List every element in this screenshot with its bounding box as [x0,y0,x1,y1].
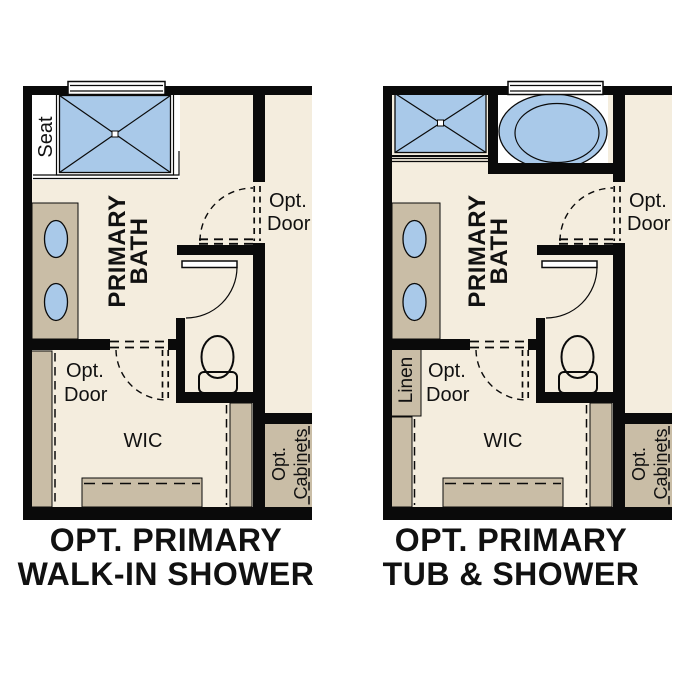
closet-shelf-right [590,403,612,507]
closet-shelf-right [230,403,252,507]
room-label-line2: BATH [126,218,153,285]
opt-cabinets-label-line2: Cabinets [651,428,671,499]
floorplans-svg: Seat Opt. Cabinets [0,0,687,687]
window [68,82,165,95]
plan-title-line2: TUB & SHOWER [383,556,640,592]
sink [403,284,426,321]
sink [403,221,426,258]
sink [45,284,68,321]
floorplan-sheet: Seat Opt. Cabinets [0,0,687,687]
sink [45,221,68,258]
plan-tub-and-shower: Linen Opt. Cabinets [383,82,672,593]
opt-door-bath-label-line2: Door [267,213,311,235]
opt-door-bath-label-line1: Opt. [629,190,667,212]
wic-label: WIC [484,430,523,452]
closet-dresser [443,478,563,507]
seat-label: Seat [35,116,57,158]
opt-door-wic-label-line2: Door [64,384,108,406]
window [508,82,603,95]
opt-door-wic-label-line1: Opt. [66,360,104,382]
opt-door-bath-label-line1: Opt. [269,190,307,212]
linen-closet: Linen [391,343,421,416]
linen-label: Linen [396,357,417,404]
opt-door-bath-label-line2: Door [627,213,671,235]
opt-cabinets-area: Opt. Cabinets [265,424,312,507]
opt-door-wic-label-line2: Door [426,384,470,406]
closet-shelf-left [391,417,412,507]
vanity [32,203,78,339]
wic-label: WIC [124,430,163,452]
vanity [392,203,440,339]
opt-cabinets-label-line1: Opt. [629,447,649,481]
opt-cabinets-label-line2: Cabinets [291,428,311,499]
corner-shower-fixture [391,90,490,162]
shower-drain [438,120,444,126]
tub-fixture [499,94,607,169]
plan-title-line2: WALK-IN SHOWER [18,556,315,592]
plan-title-line1: OPT. PRIMARY [50,522,282,558]
closet-shelf-left [31,351,52,507]
toilet-door-leaf [542,261,597,268]
toilet-door-leaf [182,261,237,268]
plan-walk-in-shower: Seat Opt. Cabinets [18,82,315,593]
opt-door-wic-label-line1: Opt. [428,360,466,382]
opt-cabinets-label-line1: Opt. [269,447,289,481]
opt-cabinets-area: Opt. Cabinets [625,424,672,507]
room-label-line2: BATH [486,218,513,285]
shower-drain [112,131,118,137]
closet-dresser [82,478,202,507]
plan-title-line1: OPT. PRIMARY [395,522,627,558]
